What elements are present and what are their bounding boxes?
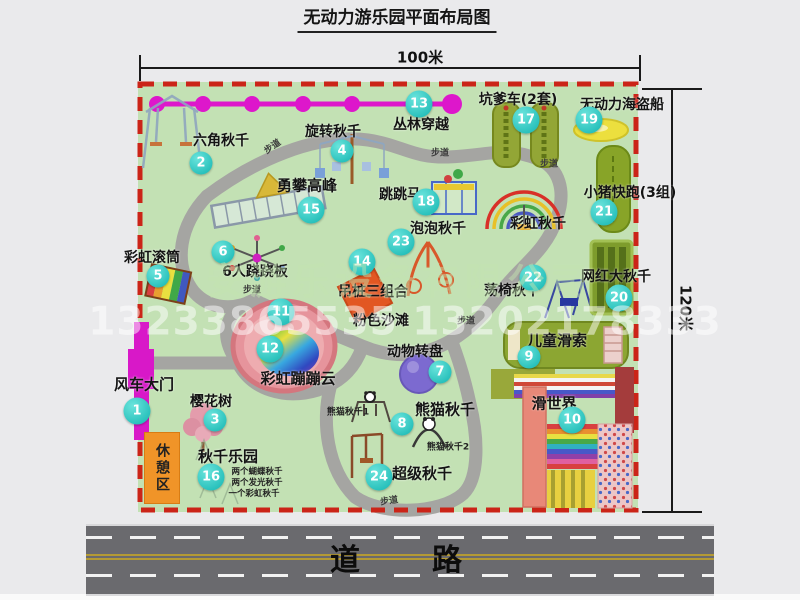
trail-label: 步道 [243,283,261,296]
slide-world-icon [491,367,634,508]
poi-marker-4: 4 [331,140,354,163]
poi-label-climbing-peak: 勇攀高峰 [277,175,337,196]
poi-label-seesaw: 6人跷跷板 [222,261,288,281]
poi-label-bubble-swing: 泡泡秋千 [410,218,466,238]
poi-marker-15: 15 [298,197,325,224]
poi-marker-7: 7 [429,361,452,384]
poi-label-big-net-swing: 网红大秋千 [581,266,651,286]
poi-marker-21: 21 [591,199,618,226]
park-plan-image: 无动力游乐园平面布局图 [0,0,800,600]
poi-label-panda-swing: 熊猫秋千 [415,399,475,420]
poi-label-pit-cars: 坑爹车(2套) [479,89,558,109]
poi-marker-1: 1 [124,398,151,425]
poi-marker-14: 14 [349,249,376,276]
poi-marker-20: 20 [606,285,633,312]
trail-label: 步道 [540,157,558,170]
poi-marker-19: 19 [576,107,603,134]
poi-marker-13: 13 [406,91,433,118]
poi-label-rotating-swing: 旋转秋千 [305,121,361,141]
poi-marker-9: 9 [518,346,541,369]
poi-marker-6: 6 [212,241,235,264]
poi-marker-8: 8 [391,413,414,436]
rest-area-label: 休憩区 [152,443,172,494]
width-dimension-label: 100米 [397,47,443,68]
poi-marker-12: 12 [257,336,284,363]
poi-marker-10: 10 [559,407,586,434]
poi-marker-22: 22 [520,265,547,292]
rest-area-box: 休憩区 [144,432,180,504]
poi-marker-2: 2 [190,152,213,175]
poi-label-hexagon-swing: 六角秋千 [193,130,249,150]
poi-label-bounce-cloud: 彩虹蹦蹦云 [260,368,335,389]
poi-note-swing-park-3: 一个彩虹秋千 [228,487,279,499]
poi-marker-11: 11 [268,299,295,326]
poi-marker-5: 5 [147,265,170,288]
poi-sublabel-panda-swing-1: 熊猫秋千1 [327,405,369,418]
bubble-swing-icon [407,242,453,296]
poi-label-super-swing: 超级秋千 [392,463,452,484]
jumping-horse-icon [432,169,476,214]
trail-label: 步道 [457,314,475,327]
poi-label-rainbow-swing: 彩虹秋千 [510,213,566,233]
poi-marker-18: 18 [413,189,440,216]
poi-marker-24: 24 [366,464,393,491]
poi-label-windmill-gate: 风车大门 [114,374,174,395]
poi-marker-23: 23 [388,229,415,256]
poi-label-animal-turntable: 动物转盘 [387,341,443,361]
poi-marker-17: 17 [513,107,540,134]
trail-label: 步道 [431,146,449,159]
poi-label-hanging-pile: 吊桩三组合 [338,281,408,301]
poi-label-rainbow-roller: 彩虹滚筒 [124,247,180,267]
poi-sublabel-panda-swing-2: 熊猫秋千2 [427,440,469,453]
trail-label: 步道 [379,492,399,507]
poi-marker-16: 16 [198,464,225,491]
poi-label-pink-beach: 粉色沙滩 [353,310,409,330]
poi-marker-3: 3 [204,409,227,432]
height-dimension-label: 120米 [676,285,697,331]
